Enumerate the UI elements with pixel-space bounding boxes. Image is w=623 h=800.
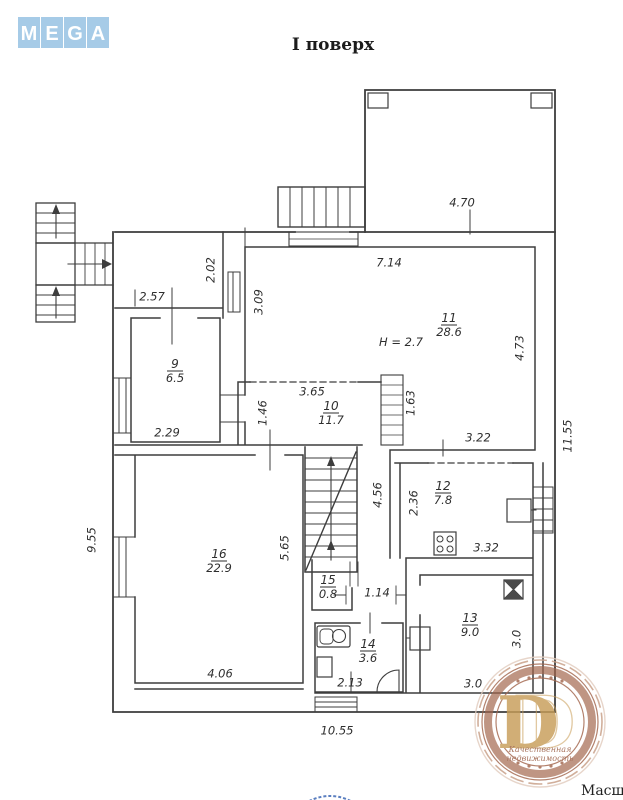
room-number: 9 [171,357,179,371]
stamp-text-line1: Качественная [508,745,572,754]
room-area: 28.6 [436,325,462,339]
scale-label: Масштаб [581,783,623,799]
hall-door-hatch [228,272,240,312]
bathtub-inner [320,629,333,644]
stair-arrow-right-icon [102,259,112,269]
bottom-steps [315,697,357,712]
logo-letter: E [45,23,58,45]
room-area: 7.8 [434,493,452,507]
dimension-label: 1.14 [364,586,390,600]
plan-labels: 4.707.142.572.023.092.294.7311.553.651.4… [85,196,575,738]
dimension-label: 2.36 [407,490,421,516]
dimension-label: 9.55 [85,527,99,553]
sink-icon [317,657,332,677]
dimension-label: 10.55 [321,724,354,738]
logo-letter: G [67,23,83,45]
dimension-label: 2.29 [154,426,180,440]
scanned-floor-plan-page: M E G A І поверх [0,0,623,800]
logo-letter: M [21,23,38,45]
dimension-label: 5.65 [278,535,292,561]
dimension-label: 4.56 [371,482,385,508]
bathtub-drain-icon [333,630,346,643]
height-note: Н = 2.7 [379,335,424,349]
stair-arrow-up-icon [327,540,335,550]
logo-letter: A [91,23,105,45]
dimension-label: 3.22 [465,431,491,445]
interior-staircase [305,452,357,570]
dimension-label: 3.09 [252,289,266,315]
stair-arrow-up-icon [52,204,60,214]
dimension-label: 3.0 [510,630,524,648]
porch-steps [278,187,365,246]
room-number: 14 [360,637,375,651]
door-arc [377,670,399,692]
stair-arrow-up-icon [52,286,60,296]
room-area: 9.0 [461,625,479,639]
room-number: 11 [441,311,456,325]
terrace-column [531,93,552,108]
mega-logo: M E G A [18,17,109,48]
terrace [365,90,555,232]
closet-lines [220,395,245,422]
agency-stamp: D D Качественная недвижимость [475,657,605,787]
room-area: 0.8 [319,587,337,601]
floor-plan-svg: M E G A І поверх [0,0,623,800]
dimension-label: 3.32 [473,541,499,555]
duct-block [381,375,403,445]
room-area: 11.7 [318,413,344,427]
dimension-label: 1.46 [256,400,270,426]
room-number: 10 [323,399,339,413]
stair-arrow-up-icon [327,456,335,466]
dimension-label: 1.63 [404,390,418,416]
room-area: 6.5 [166,371,184,385]
room-area: 3.6 [359,651,377,665]
dimension-label: 4.06 [207,667,233,681]
dimension-label: 3.0 [464,677,482,691]
dimension-label: 3.65 [299,385,325,399]
terrace-column [368,93,388,108]
room-number: 12 [435,479,450,493]
room-number: 13 [462,611,477,625]
dimension-label: 4.73 [513,335,527,361]
appliance-icon [507,499,531,522]
dimension-label: 11.55 [561,420,575,453]
exterior-staircase [36,203,113,322]
room-area: 22.9 [206,561,232,575]
stove-icon [434,532,456,555]
dimension-label: 2.57 [139,290,165,304]
page-title: І поверх [292,35,375,55]
stamp-text-line2: недвижимость [507,754,574,763]
dimension-label: 4.70 [449,196,475,210]
dimension-label: 2.13 [337,676,363,690]
room-number: 15 [320,573,335,587]
dimension-label: 2.02 [204,257,218,283]
room-number: 16 [211,547,227,561]
dimension-label: 7.14 [376,256,402,270]
blue-stamp-arc [285,796,375,800]
